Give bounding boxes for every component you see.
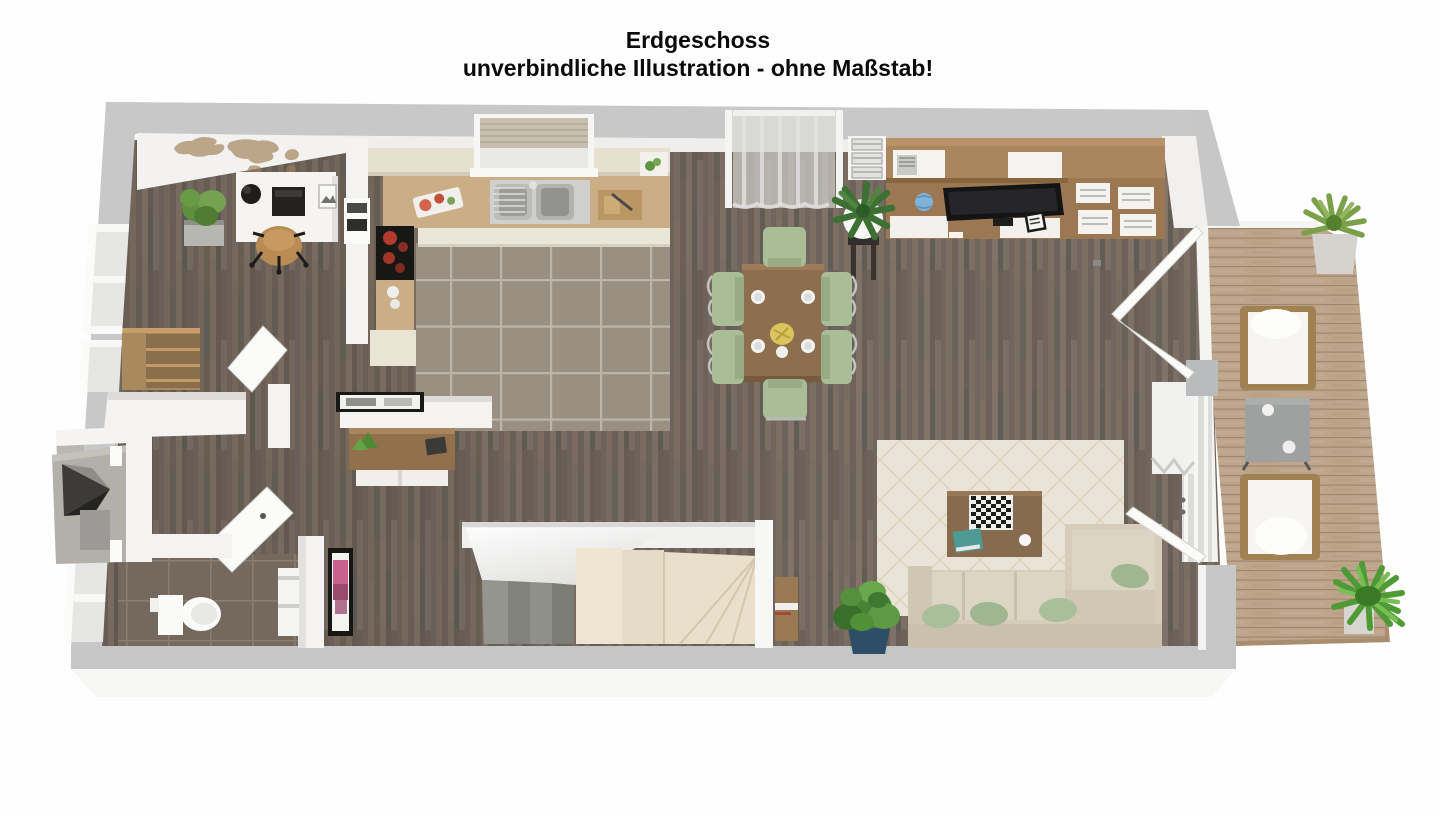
- svg-text:Erdgeschoss: Erdgeschoss: [626, 27, 770, 53]
- svg-text:unverbindliche Illustration -: unverbindliche Illustration - ohne Maßst…: [463, 55, 933, 81]
